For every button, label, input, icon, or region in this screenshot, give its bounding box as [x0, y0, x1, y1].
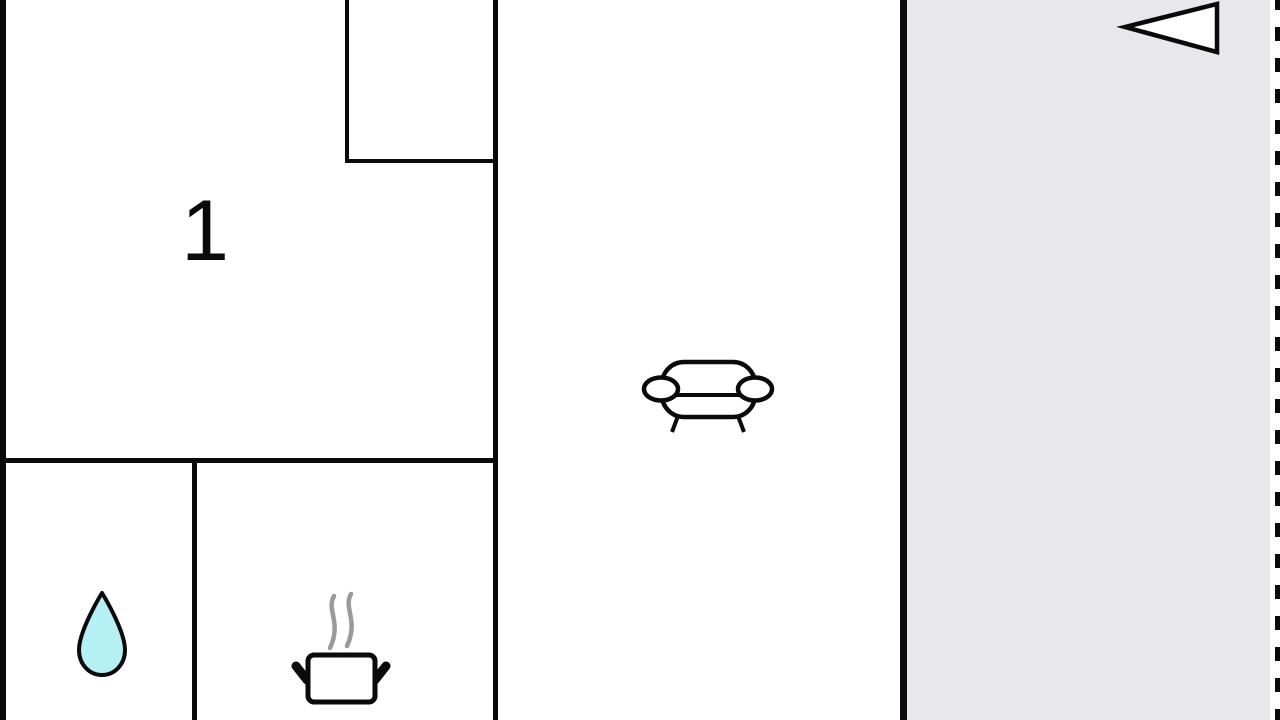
wall-closet-bottom	[345, 159, 498, 163]
floorplan-canvas: 1	[0, 0, 1280, 720]
terrace-area	[907, 0, 1270, 720]
room-1-label: 1	[168, 188, 242, 274]
entrance-triangle-icon	[1118, 0, 1224, 58]
wall-outer-left	[0, 0, 6, 720]
sofa-icon	[638, 355, 778, 440]
steaming-pot-icon	[283, 590, 403, 710]
wall-main-vertical	[493, 0, 498, 720]
terrace-dashed-boundary	[1275, 0, 1280, 720]
wall-bath-kitchen-divider	[192, 458, 197, 720]
wall-room1-bottom	[0, 458, 498, 463]
wall-closet-left	[345, 0, 349, 163]
wall-living-terrace	[900, 0, 907, 720]
water-drop-icon	[72, 588, 132, 680]
